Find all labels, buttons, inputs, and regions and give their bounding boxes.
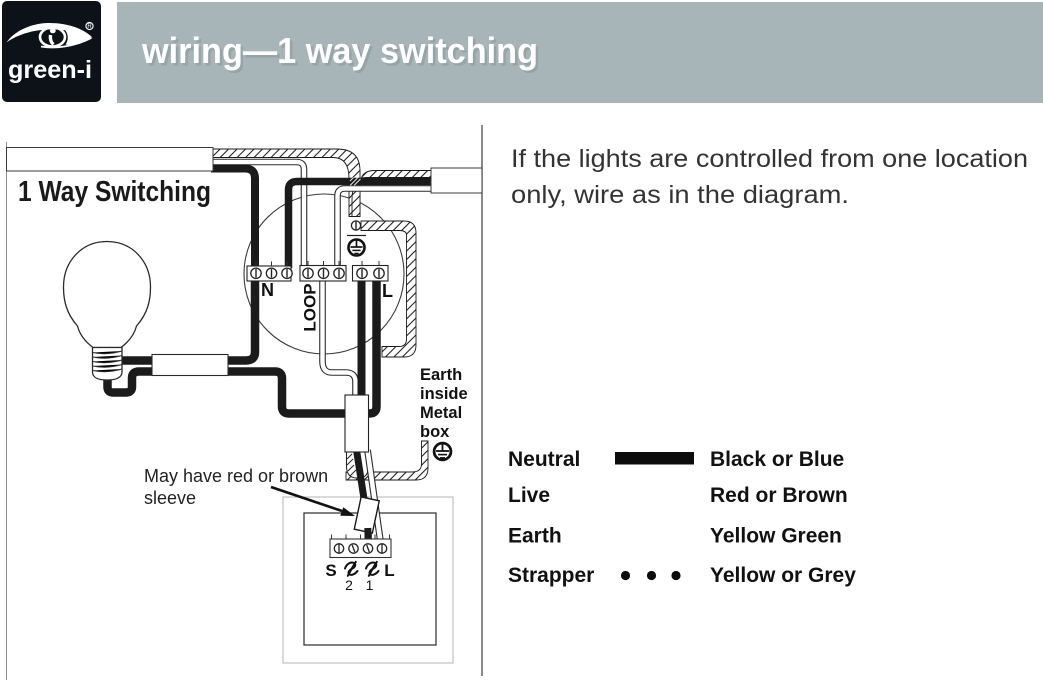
svg-text:Red or Brown: Red or Brown: [710, 484, 848, 507]
svg-text:S: S: [325, 561, 336, 580]
svg-text:wiring—1 way switching: wiring—1 way switching: [141, 30, 538, 71]
svg-text:Neutral: Neutral: [508, 448, 580, 471]
svg-text:If the lights are controlled f: If the lights are controlled from one lo…: [511, 145, 1028, 173]
svg-text:Black or Blue: Black or Blue: [710, 448, 844, 471]
svg-text:May have red or brown: May have red or brown: [144, 466, 328, 486]
svg-text:Earth: Earth: [420, 366, 462, 384]
svg-text:LOOP: LOOP: [301, 283, 320, 331]
svg-text:green-i: green-i: [8, 56, 92, 84]
svg-text:1 Way Switching: 1 Way Switching: [18, 176, 211, 208]
svg-text:Strapper: Strapper: [508, 564, 594, 587]
svg-text:1: 1: [366, 577, 374, 593]
svg-text:R: R: [87, 24, 92, 30]
svg-text:Yellow or Grey: Yellow or Grey: [710, 564, 856, 587]
svg-text:L: L: [382, 281, 393, 301]
svg-text:Yellow Green: Yellow Green: [710, 525, 842, 548]
svg-text:only, wire as in the diagram.: only, wire as in the diagram.: [511, 181, 849, 209]
svg-text:inside: inside: [420, 385, 468, 403]
svg-text:2: 2: [345, 577, 353, 593]
svg-text:L: L: [384, 561, 394, 580]
svg-text:box: box: [420, 423, 450, 441]
svg-text:Metal: Metal: [420, 404, 462, 422]
svg-text:Earth: Earth: [508, 525, 562, 548]
svg-text:N: N: [261, 280, 274, 300]
svg-text:Live: Live: [508, 484, 550, 507]
svg-text:sleeve: sleeve: [144, 488, 196, 508]
